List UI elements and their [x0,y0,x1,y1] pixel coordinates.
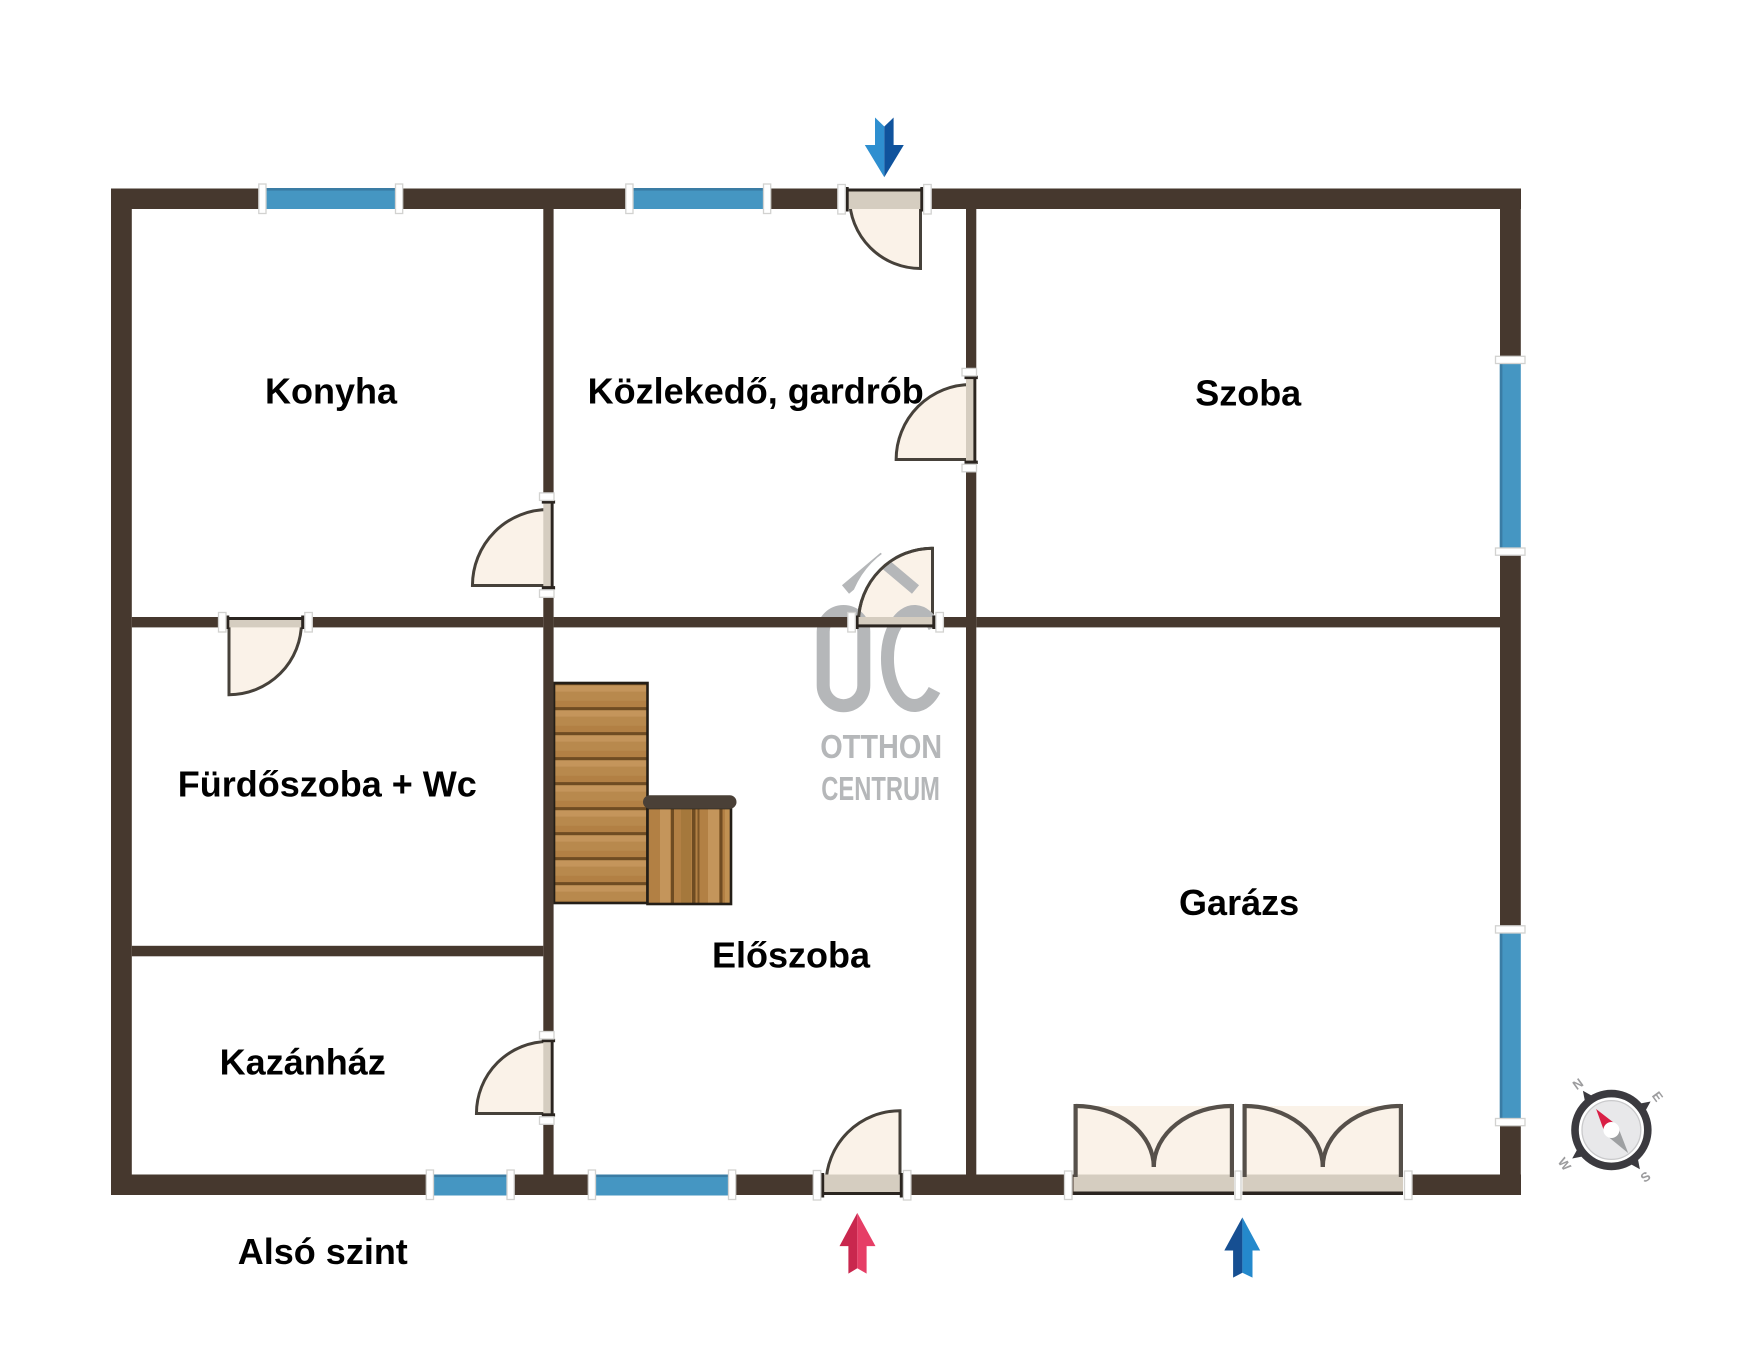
svg-text:Előszoba: Előszoba [712,935,871,976]
svg-text:Kazánház: Kazánház [220,1042,386,1083]
svg-text:Szoba: Szoba [1195,373,1302,414]
svg-text:Közlekedő, gardrób: Közlekedő, gardrób [588,371,924,412]
svg-text:Konyha: Konyha [265,371,398,412]
svg-text:CENTRUM: CENTRUM [821,770,940,807]
svg-text:Fürdőszoba + Wc: Fürdőszoba + Wc [178,764,477,805]
svg-text:Garázs: Garázs [1179,882,1299,923]
svg-text:Alsó szint: Alsó szint [238,1231,408,1272]
svg-text:OTTHON: OTTHON [820,728,942,765]
